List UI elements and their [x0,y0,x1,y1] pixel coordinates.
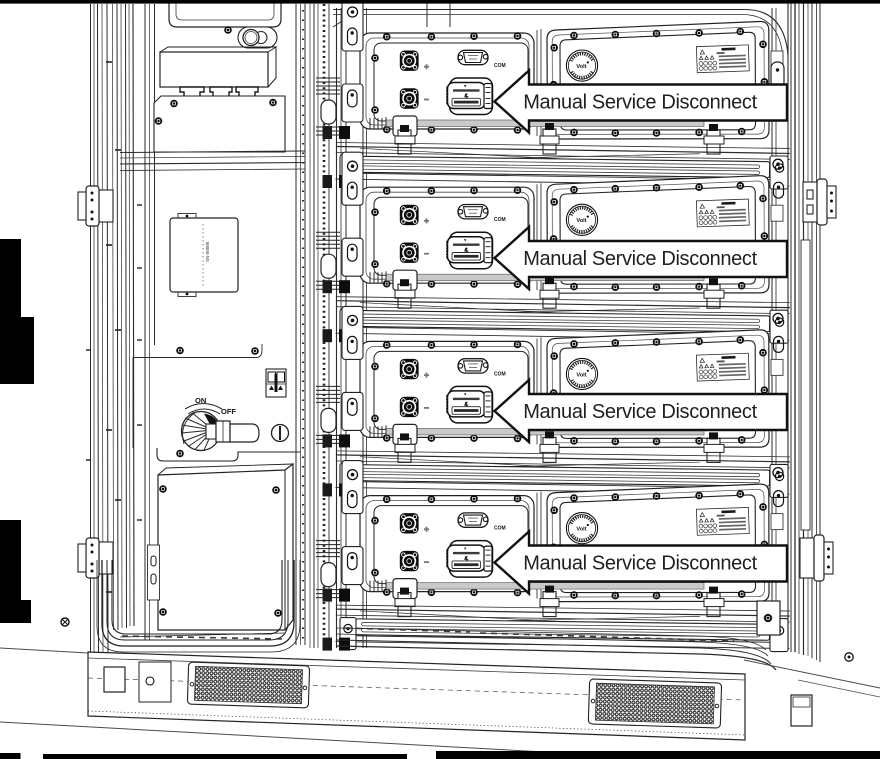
svg-text:OFF: OFF [221,407,236,416]
svg-text:SN-00000: SN-00000 [205,241,210,262]
